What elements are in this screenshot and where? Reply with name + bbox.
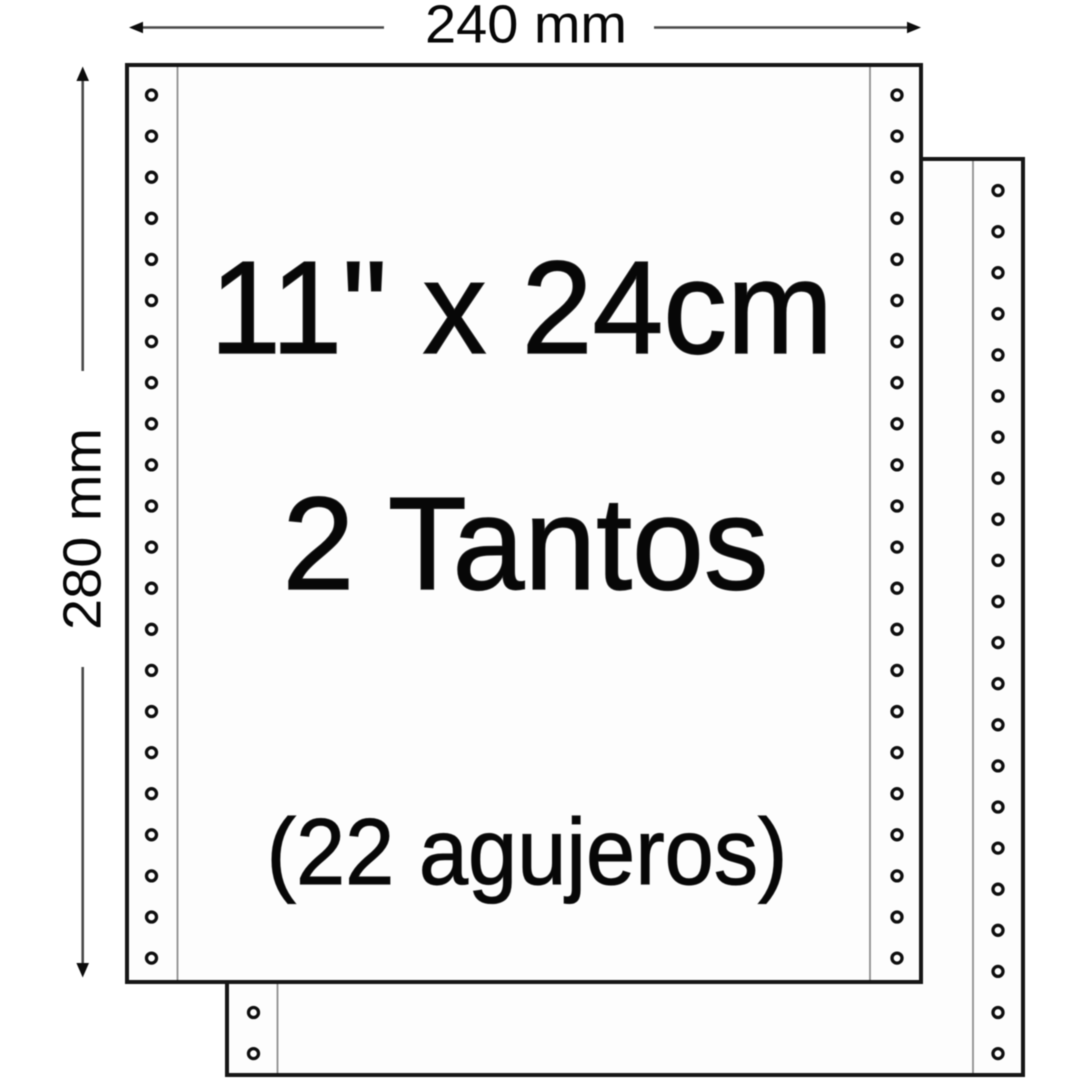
svg-text:(22 agujeros): (22 agujeros): [267, 799, 788, 904]
svg-text:280 mm: 280 mm: [53, 428, 113, 630]
svg-text:240 mm: 240 mm: [425, 0, 627, 55]
svg-text:11" x 24cm: 11" x 24cm: [210, 234, 833, 381]
svg-text:2 Tantos: 2 Tantos: [283, 470, 769, 617]
